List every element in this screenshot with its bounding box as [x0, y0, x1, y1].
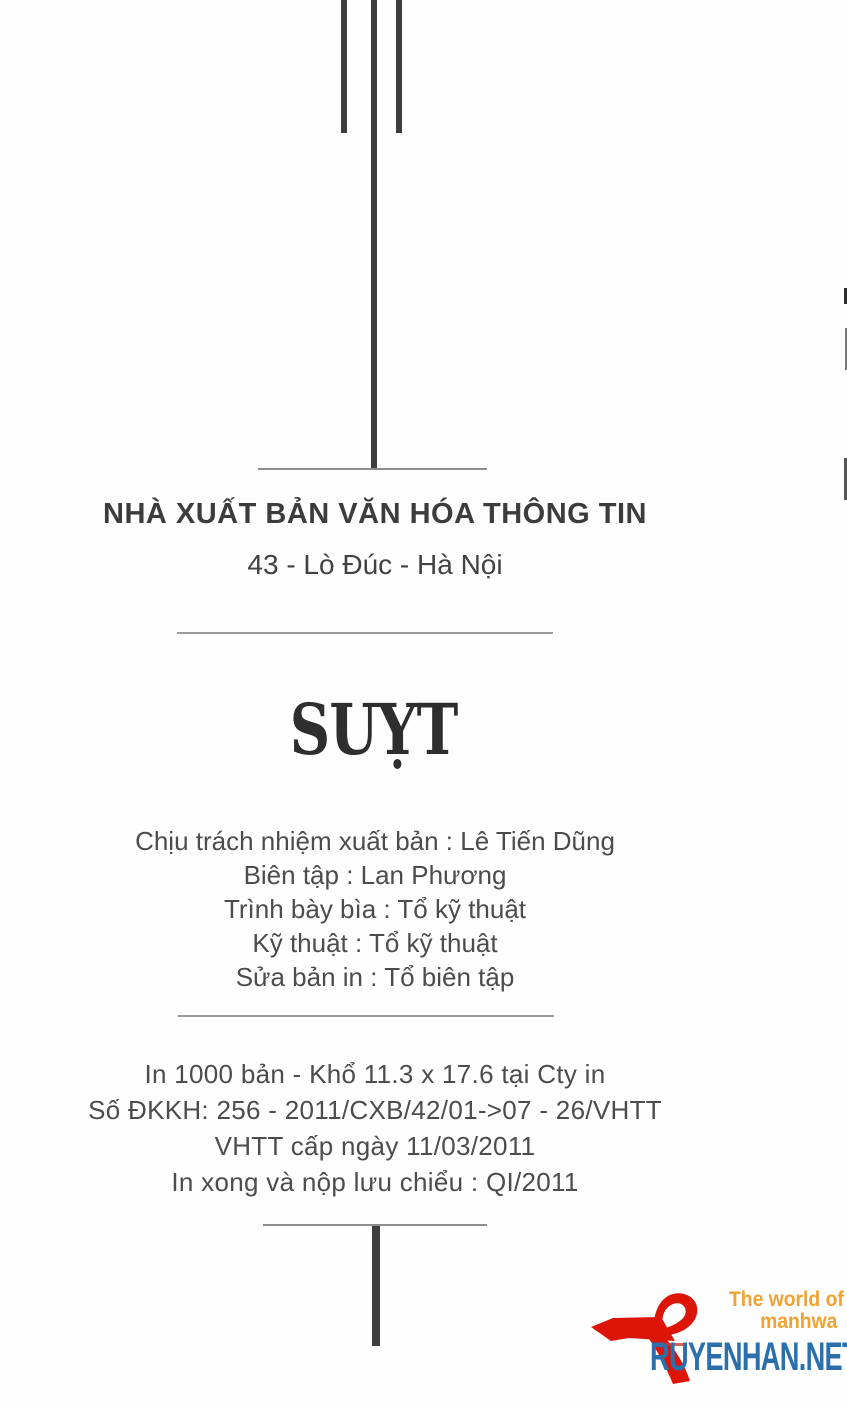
- credits-line-cover-design: Trình bày bìa : Tổ kỹ thuật: [0, 892, 750, 926]
- credits-block: Chịu trách nhiệm xuất bản : Lê Tiến Dũng…: [0, 824, 750, 994]
- credits-line-technical: Kỹ thuật : Tổ kỹ thuật: [0, 926, 750, 960]
- credits-line-responsible: Chịu trách nhiệm xuất bản : Lê Tiến Dũng: [0, 824, 750, 858]
- credits-line-proofreading: Sửa bản in : Tổ biên tập: [0, 960, 750, 994]
- credits-line-editor: Biên tập : Lan Phương: [0, 858, 750, 892]
- divider-upper: [177, 632, 553, 634]
- ornament-bar-top-left: [341, 0, 347, 133]
- ornament-bar-top-middle: [371, 0, 377, 470]
- book-title: SUỴT: [74, 688, 674, 771]
- divider-lower: [178, 1015, 554, 1017]
- ornament-bar-top-right: [396, 0, 402, 133]
- ornament-rule-top: [258, 468, 487, 470]
- watermark-site-name: RUYENHAN.NET: [650, 1335, 847, 1380]
- publisher-name: NHÀ XUẤT BẢN VĂN HÓA THÔNG TIN: [0, 498, 750, 531]
- watermark-tagline: The world of manhwa: [729, 1289, 844, 1333]
- watermark-tagline-line1: The world of: [729, 1289, 844, 1311]
- watermark: The world of manhwa RUYENHAN.NET: [587, 1277, 847, 1407]
- printing-line-registration: Số ĐKKH: 256 - 2011/CXB/42/01->07 - 26/V…: [0, 1092, 750, 1128]
- printing-line-deposit: In xong và nộp lưu chiểu : QI/2011: [0, 1164, 750, 1200]
- colophon-page: NHÀ XUẤT BẢN VĂN HÓA THÔNG TIN 43 - Lò Đ…: [0, 0, 847, 1407]
- printing-line-license-date: VHTT cấp ngày 11/03/2011: [0, 1128, 750, 1164]
- printing-line-copies: In 1000 bản - Khổ 11.3 x 17.6 tại Cty in: [0, 1056, 750, 1092]
- ornament-bar-bottom-middle: [372, 1226, 380, 1346]
- publisher-address: 43 - Lò Đúc - Hà Nội: [0, 549, 750, 581]
- printing-info-block: In 1000 bản - Khổ 11.3 x 17.6 tại Cty in…: [0, 1056, 750, 1200]
- watermark-tagline-line2: manhwa: [729, 1311, 844, 1333]
